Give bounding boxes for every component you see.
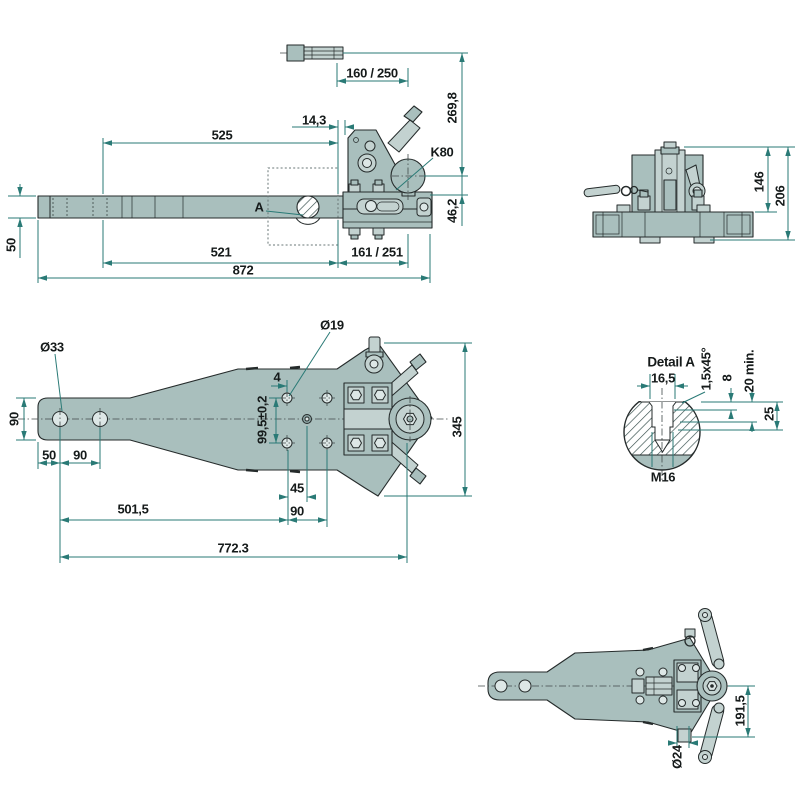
dia-label-33: Ø33 — [40, 340, 64, 355]
dim-label-90-holes: 90 — [73, 448, 87, 463]
technical-drawing-svg — [0, 0, 800, 800]
dim-label-160-250: 160 / 250 — [346, 66, 398, 81]
dim-label-50-side: 50 — [4, 238, 19, 252]
dim-label-8: 8 — [720, 375, 735, 382]
dim-label-772-3: 772.3 — [217, 541, 248, 556]
dim-label-25: 25 — [762, 407, 777, 421]
detail-a-title: Detail A — [647, 355, 694, 370]
dim-label-90-bottom: 90 — [290, 504, 304, 519]
dim-label-46-2: 46,2 — [445, 199, 460, 223]
dim-label-14-3: 14,3 — [302, 113, 326, 128]
dim-label-525: 525 — [212, 128, 233, 143]
dim-label-191-5: 191,5 — [733, 695, 748, 726]
dia-label-24: Ø24 — [670, 745, 685, 769]
dim-label-16-5: 16,5 — [651, 371, 675, 386]
ball-type-label-k80: K80 — [431, 145, 454, 160]
dim-label-269-8: 269,8 — [445, 92, 460, 123]
dim-label-20-min: 20 min. — [742, 350, 757, 393]
dim-label-45: 45 — [290, 481, 304, 496]
dim-label-chamfer: 1,5x45° — [699, 348, 714, 391]
dim-label-521: 521 — [211, 245, 232, 260]
dim-label-206: 206 — [773, 186, 788, 207]
bottom-view — [478, 609, 755, 764]
detail-ref-label-a: A — [254, 200, 263, 215]
dim-label-345: 345 — [450, 417, 465, 438]
front-view — [584, 142, 795, 243]
dia-label-19: Ø19 — [320, 318, 344, 333]
dim-label-146: 146 — [752, 172, 767, 193]
thread-label-m16: M16 — [651, 470, 675, 485]
dim-label-872: 872 — [233, 263, 254, 278]
dim-label-50-top: 50 — [42, 448, 56, 463]
dim-label-99-5: 99,5±0,2 — [255, 396, 270, 444]
dim-label-161-251: 161 / 251 — [351, 245, 403, 260]
dim-label-90-left: 90 — [7, 412, 22, 426]
dim-label-501-5: 501,5 — [117, 502, 148, 517]
technical-drawing-page: 160 / 250 269,8 K80 46,2 525 14,3 A 50 5… — [0, 0, 800, 800]
dim-label-4: 4 — [274, 370, 281, 385]
